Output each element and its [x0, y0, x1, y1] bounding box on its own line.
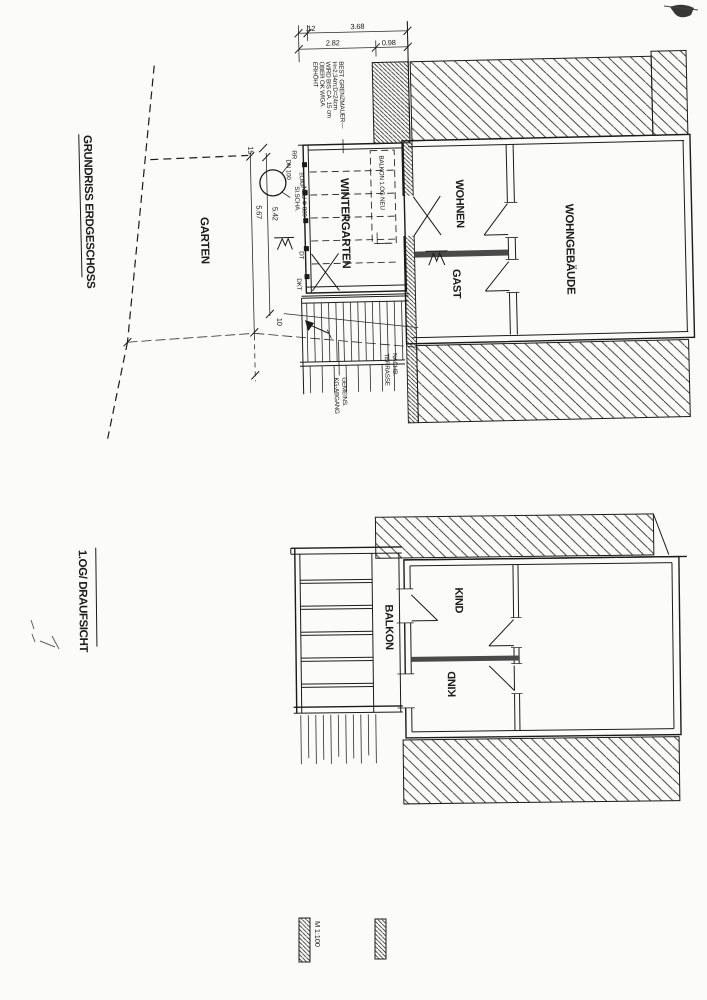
room-balkon: BALKON: [382, 604, 395, 650]
room-wohngebaeude: WOHNGEBÄUDE: [562, 204, 577, 296]
mark-dkt: DKT: [295, 278, 302, 291]
stairs-label-2: KG-ABGANG: [332, 377, 340, 414]
shaft-name-label: SI.SCHA.: [293, 186, 301, 212]
stairs-label-1: GEMEINS.: [340, 377, 348, 407]
room-gast: GAST: [450, 269, 463, 299]
note-line-5: ERHÖHT: [311, 62, 320, 88]
room-kind-2: KIND: [446, 671, 458, 697]
room-wohnen: WOHNEN: [453, 179, 466, 228]
room-kind-1: KIND: [452, 587, 464, 613]
dim-368: 3.68: [350, 22, 364, 31]
hatch-band-bottom: [417, 339, 691, 422]
legend-swatch-1: [299, 918, 310, 962]
mark-rr: RR: [290, 150, 297, 160]
scale-label: M 1:100: [313, 921, 322, 947]
shaft-dia-label: NEU Φ 800: [300, 186, 308, 217]
shaft-dn-label: DN 100: [284, 159, 291, 180]
dim-542: 5.42: [270, 207, 279, 221]
scanned-floor-plan-page: GRUNDRISS ERDGESCHOSS .12 3.68 2.82 0.98…: [0, 0, 707, 1000]
dim-282: 2.82: [326, 38, 340, 47]
balkon-overlay-label: BALKON 1.OG NEU: [377, 155, 385, 210]
hatch-band-bottom-og: [403, 737, 680, 804]
neighbor-label-1: NACHB.: [391, 353, 399, 376]
dim-567: 5.67: [254, 205, 263, 219]
hatch-band-top-og: [375, 514, 668, 559]
dim-10: 10: [275, 318, 284, 326]
neighbor-label-2: TERRASSE: [383, 353, 391, 385]
legend-swatch-2: [375, 919, 386, 959]
dim-12: .12: [305, 24, 315, 33]
floor-plan-drawing: GRUNDRISS ERDGESCHOSS .12 3.68 2.82 0.98…: [0, 0, 707, 1000]
plan-bottom-title: 1.OG/ DRAUFSICHT: [76, 550, 89, 653]
room-wintergarten: WINTERGARTEN: [338, 178, 352, 269]
dim-098: 0.98: [382, 38, 396, 47]
mark-dt: DT: [297, 251, 304, 260]
paper-background: [0, 0, 707, 1000]
room-garten: GARTEN: [198, 217, 211, 264]
dim-15: 15: [246, 146, 255, 154]
